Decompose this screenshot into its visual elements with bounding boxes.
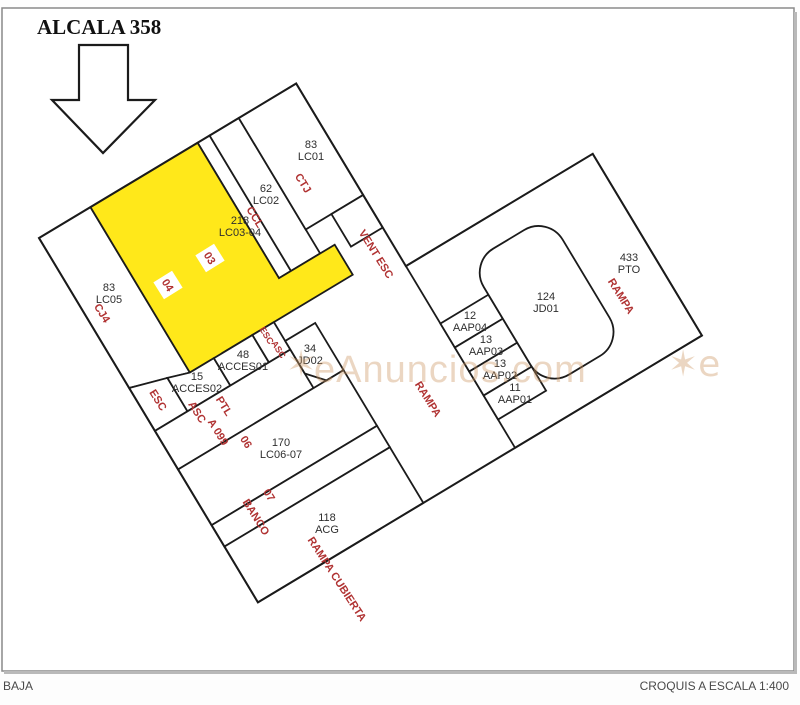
label-lc01-area: 83 [305,139,317,151]
label-aap04-area: 12 [464,310,476,322]
page-title: ALCALA 358 [37,15,161,39]
label-lc02-area: 62 [260,183,272,195]
footer-floor-label: BAJA [3,679,33,693]
watermark-partial: ✶e [668,344,720,385]
label-aap04-code: AAP04 [453,322,487,334]
watermark-star-icon: ✶ [286,344,316,385]
label-pto-code: PTO [618,264,641,276]
footer-scale-label: CROQUIS A ESCALA 1:400 [640,679,790,693]
watermark-text: eAnuncios.com [314,349,587,391]
label-jd01-code: JD01 [533,303,559,315]
label-acces01-code: ACCES01 [218,361,268,373]
label-acces02-area: 15 [191,371,203,383]
label-acg-area: 118 [318,512,336,524]
label-lc05-area: 83 [103,282,115,294]
label-aap03-area: 13 [480,334,492,346]
label-acces01-area: 48 [237,349,249,361]
label-acces02-code: ACCES02 [172,383,222,395]
label-lc0304-area: 218 [231,215,249,227]
label-acg-code: ACG [315,524,339,536]
label-lc02-code: LC02 [253,195,279,207]
croquis-page: ALCALA 358 83 LC01 62 [0,0,800,705]
label-lc01-code: LC01 [298,151,324,163]
label-pto-area: 433 [620,252,638,264]
label-jd01-area: 124 [537,291,555,303]
label-aap01-code: AAP01 [498,394,532,406]
label-lc0607-code: LC06-07 [260,449,302,461]
label-lc0607-area: 170 [272,437,290,449]
